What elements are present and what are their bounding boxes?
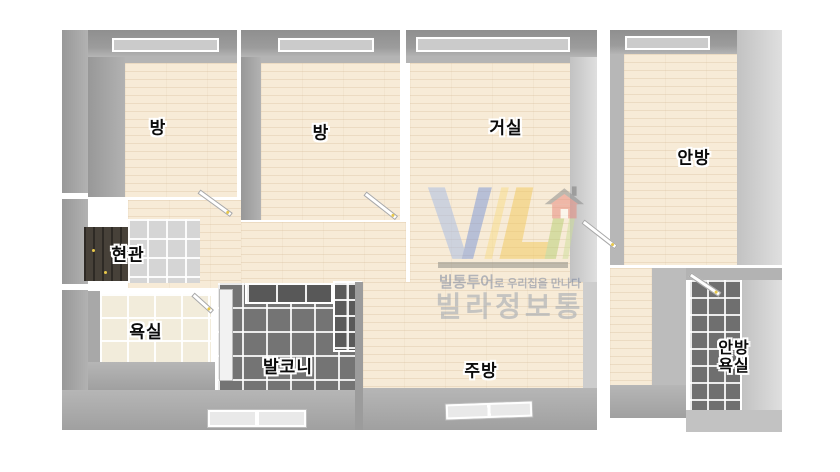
label-entrance: 현관 <box>111 241 144 266</box>
watermark-divider-bar <box>438 262 568 268</box>
bedroom-1-window <box>112 38 219 52</box>
door-handle-dot <box>92 249 95 252</box>
logo-v-left-stroke <box>428 187 468 259</box>
label-balcony: 발코니 <box>263 353 313 378</box>
outer-wall-left-segment-1 <box>62 30 88 193</box>
bedroom-2-window <box>278 38 374 52</box>
bedroom-2-left-wall <box>241 57 261 220</box>
master-bathroom-bottom-wall <box>686 410 782 432</box>
bedroom-1-floor <box>125 63 237 197</box>
label-bedroom-1: 방 <box>150 114 167 139</box>
label-master-bathroom-line1: 안방 <box>718 340 749 358</box>
watermark-logo-vli <box>426 185 586 265</box>
floorplan-canvas: 빌통투어로 우리집을 만나다 빌라정보통 방 방 거실 안방 현관 욕실 발코니… <box>0 0 840 472</box>
balcony-bottom-window <box>208 410 306 427</box>
kitchen-bottom-window <box>446 402 532 420</box>
logo-i-thin-stroke <box>562 214 575 259</box>
label-living: 거실 <box>489 114 522 139</box>
bathroom-bottom-wall <box>88 362 215 390</box>
master-left-wall <box>610 54 624 265</box>
bedroom-2-floor <box>261 63 400 220</box>
logo-i-stroke <box>545 214 566 259</box>
watermark: 빌통투어로 우리집을 만나다 빌라정보통 <box>420 183 600 325</box>
house-icon <box>545 186 585 218</box>
master-bottom-wall <box>610 385 686 418</box>
label-bedroom-2: 방 <box>313 119 330 144</box>
label-bathroom: 욕실 <box>129 318 162 343</box>
label-master-bathroom: 안방 욕실 <box>718 340 749 376</box>
hallway-floor-right <box>241 222 406 288</box>
outer-wall-right-segment-1 <box>737 30 782 265</box>
balcony-kitchen-wall <box>355 282 363 430</box>
balcony-cabinet <box>219 289 233 381</box>
watermark-brand-name: 빌라정보통 <box>420 285 600 325</box>
bedroom-1-left-wall <box>88 57 125 197</box>
label-master-bathroom-line2: 욕실 <box>718 358 749 376</box>
label-master: 안방 <box>677 144 710 169</box>
label-kitchen: 주방 <box>464 357 497 382</box>
balcony-sliding-door <box>245 283 333 304</box>
master-window <box>625 36 710 50</box>
living-window <box>416 37 570 52</box>
door-handle-dot <box>104 271 107 274</box>
